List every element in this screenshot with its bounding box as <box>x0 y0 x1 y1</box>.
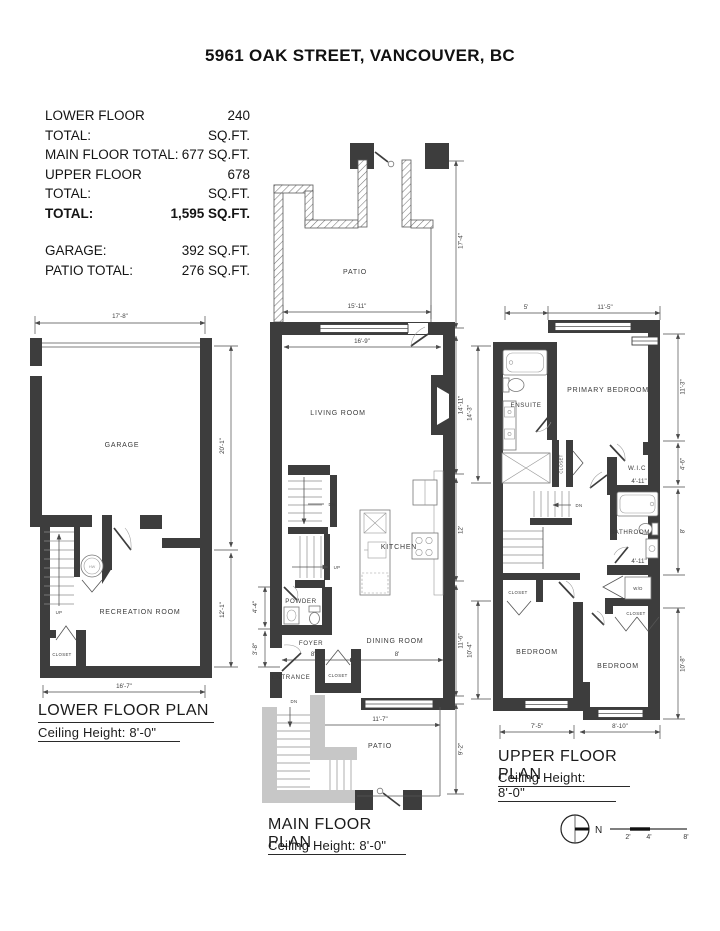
dining-room-window <box>365 700 433 708</box>
dim-wic-width: 4'-11" <box>631 478 646 485</box>
dim-wic-height: 4'-6" <box>680 458 687 470</box>
summary-label: GARAGE: <box>45 241 107 261</box>
upper-stair-dn-label: DN <box>576 503 583 508</box>
closet-label: CLOSET <box>52 652 71 657</box>
dim-ensuite-height: 14'-3" <box>467 405 474 421</box>
compass-and-scale: N 2' 4' 8' <box>545 805 705 860</box>
entry-closet-label: CLOSET <box>328 673 347 678</box>
living-room-label: LIVING ROOM <box>310 410 365 417</box>
living-room-window <box>320 325 408 333</box>
patio-hatched-walls <box>274 160 433 322</box>
dim-rec-height: 12'-1" <box>219 602 226 618</box>
dim-patio-height: 17'-4" <box>458 233 465 249</box>
dim-ensuite-width: 5' <box>524 304 529 311</box>
back-stairs: DN <box>262 695 357 803</box>
recreation-room-label: RECREATION ROOM <box>99 609 180 616</box>
dim-living-width: 16'-9" <box>354 338 370 345</box>
kitchen-label: KITCHEN <box>381 544 417 551</box>
dim-bedroom2-width: 8'-10" <box>612 723 628 730</box>
scale-8ft-label: 8' <box>683 834 688 841</box>
scale-4ft-label: 4' <box>646 834 651 841</box>
floor-plan-sheet: 5961 OAK STREET, VANCOUVER, BC LOWER FLO… <box>0 0 720 931</box>
page-title: 5961 OAK STREET, VANCOUVER, BC <box>0 46 720 66</box>
washer-dryer-icon: W/D <box>625 577 651 599</box>
closet-door-icon <box>56 626 76 640</box>
summary-row-total: TOTAL: 1,595 SQ.FT. <box>45 204 250 224</box>
summary-label: TOTAL: <box>45 204 93 224</box>
summary-row: PATIO TOTAL: 276 SQ.FT. <box>45 261 250 281</box>
hot-water-tank-icon: HW <box>81 555 103 577</box>
closet2-label: CLOSET <box>508 590 527 595</box>
dim-bath-width: 4'-11" <box>631 558 646 565</box>
main-floor-plan-drawing: 17'-4" 15'-11" 16'-9" 14'-11" 12' 11'-6"… <box>240 135 473 815</box>
dim-foyer-height: 3'-8" <box>252 643 259 655</box>
stair-dn-label: DN <box>329 502 336 507</box>
dim-primary-height: 11'-3" <box>680 379 687 394</box>
entrance-label: ENTRANCE <box>272 674 311 681</box>
kitchen-island <box>360 510 390 595</box>
ensuite-fixtures <box>502 350 550 483</box>
stair-up-label: UP <box>56 610 63 615</box>
patio-top-label: PATIO <box>343 269 367 276</box>
dim-lower-width-bottom: 16'-7" <box>116 683 132 690</box>
hw-label: HW <box>89 565 96 569</box>
north-arrow-icon: N <box>561 815 602 843</box>
summary-label: MAIN FLOOR TOTAL: <box>45 145 179 165</box>
summary-row: UPPER FLOOR TOTAL: 678 SQ.FT. <box>45 165 250 204</box>
dim-primary-width: 11'-5" <box>597 304 612 311</box>
north-label: N <box>595 825 602 836</box>
bedroom2-label: BEDROOM <box>597 663 639 670</box>
back-stair-dn-label: DN <box>291 699 298 704</box>
dim-bedroom1-height: 10'-4" <box>467 642 474 658</box>
garage-room-label: GARAGE <box>105 442 140 449</box>
upper-floor-ceiling-height: Ceiling Height: 8'-0" <box>498 770 616 802</box>
dim-powder-height: 4'-4" <box>252 601 259 613</box>
lower-floor-plan-drawing: 17'-8" 20'-1" 12'-1" 16'-7" <box>28 300 248 698</box>
dim-garage-height: 20'-1" <box>219 438 226 454</box>
main-floor-ceiling-height: Ceiling Height: 8'-0" <box>268 838 388 855</box>
summary-label: UPPER FLOOR TOTAL: <box>45 165 185 204</box>
dim-dining-width: 8' <box>395 651 400 658</box>
upper-stairs: DN <box>503 491 582 569</box>
rec-room-door-icon <box>114 528 131 550</box>
stair-up-label: UP <box>334 565 341 570</box>
powder-room-label: POWDER <box>285 598 316 605</box>
dim-bath-height: 8' <box>680 529 687 534</box>
under-stair-door-icon <box>82 580 102 592</box>
summary-label: PATIO TOTAL: <box>45 261 133 281</box>
closet3-label: CLOSET <box>626 611 645 616</box>
scale-bar: 2' 4' 8' <box>610 827 689 841</box>
lower-walls <box>30 338 212 678</box>
bedroom1-label: BEDROOM <box>516 649 558 656</box>
dim-bedroom2-height: 10'-8" <box>680 656 687 672</box>
upper-floor-plan-drawing: 5' 11'-5" 11'-3" 4'-6" 8' 10'-8" 14'-3" … <box>455 295 690 755</box>
garage-door-line <box>42 343 200 347</box>
closet1-label: CLOSET <box>559 454 564 473</box>
ensuite-label: ENSUITE <box>510 402 541 409</box>
wic-label: W.I.C <box>628 465 646 472</box>
dining-room-label: DINING ROOM <box>366 638 423 645</box>
lower-floor-ceiling-height: Ceiling Height: 8'-0" <box>38 725 180 742</box>
patio-bottom-label: PATIO <box>368 743 392 750</box>
entry-closet-door-icon <box>326 650 350 665</box>
area-summary-table: LOWER FLOOR TOTAL: 240 SQ.FT. MAIN FLOOR… <box>45 106 250 280</box>
dim-bedroom1-width: 7'-5" <box>531 723 543 730</box>
back-gate <box>355 707 440 810</box>
bathroom-label: BATHROOM <box>610 529 650 536</box>
summary-value: 1,595 SQ.FT. <box>170 204 250 224</box>
dim-patio2-width: 11'-7" <box>372 716 387 723</box>
primary-bedroom-label: PRIMARY BEDROOM <box>567 387 649 394</box>
summary-row: LOWER FLOOR TOTAL: 240 SQ.FT. <box>45 106 250 145</box>
summary-row: MAIN FLOOR TOTAL: 677 SQ.FT. <box>45 145 250 165</box>
foyer-label: FOYER <box>299 640 323 647</box>
powder-room-fixtures <box>284 586 320 625</box>
entrance-door-icon <box>282 645 301 671</box>
kitchen-appliances <box>412 471 443 595</box>
wd-label: W/D <box>633 586 642 591</box>
summary-label: LOWER FLOOR TOTAL: <box>45 106 186 145</box>
dim-patio-width: 15'-11" <box>348 303 367 310</box>
dim-lower-width-top: 17'-8" <box>112 313 128 320</box>
lower-floor-plan-title: LOWER FLOOR PLAN <box>38 702 214 723</box>
summary-row: GARAGE: 392 SQ.FT. <box>45 241 250 261</box>
scale-2ft-label: 2' <box>625 834 630 841</box>
bathroom-fixtures <box>617 492 658 558</box>
